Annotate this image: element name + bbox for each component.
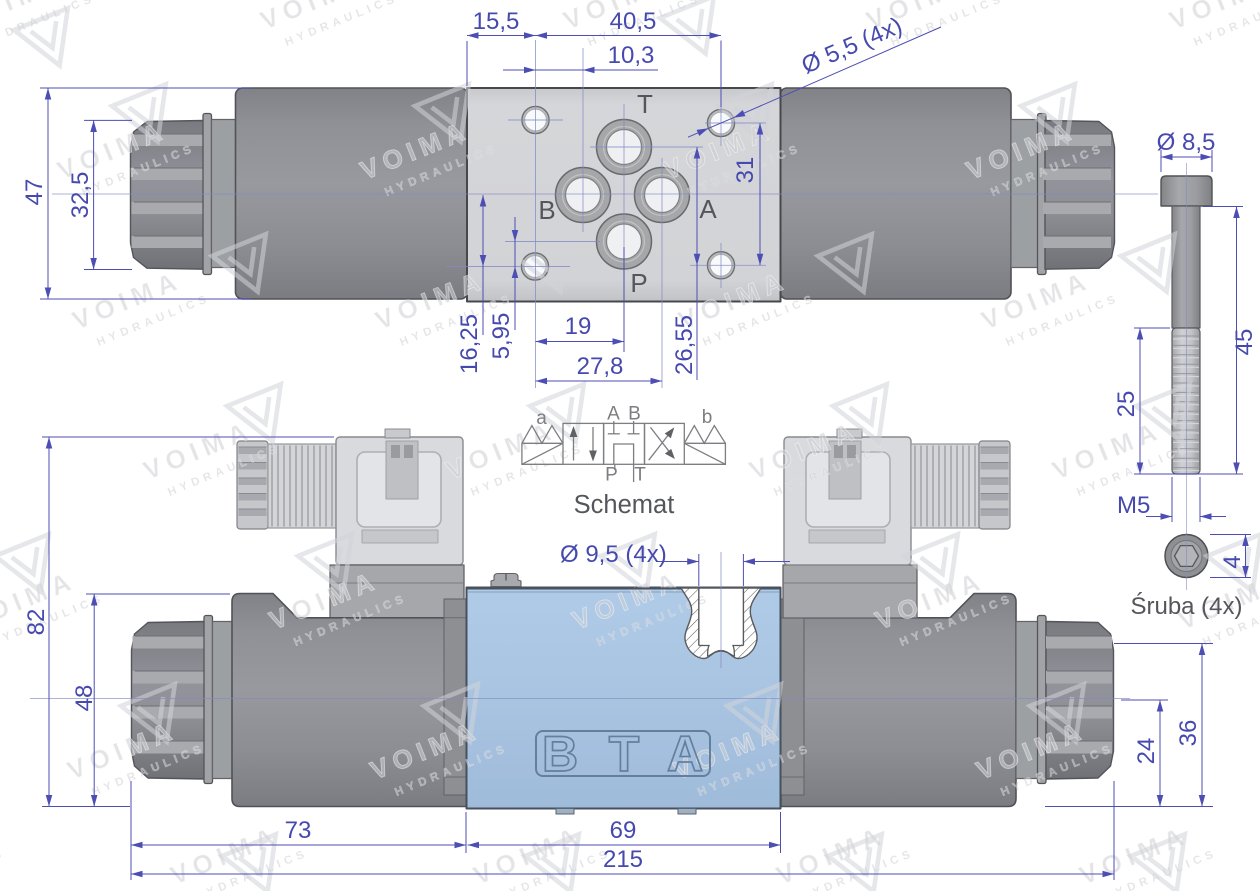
svg-text:25: 25 <box>1113 391 1140 418</box>
svg-text:27,8: 27,8 <box>577 353 624 380</box>
svg-text:19: 19 <box>565 313 592 340</box>
svg-text:P: P <box>605 465 618 486</box>
svg-text:A: A <box>699 194 717 224</box>
svg-text:45: 45 <box>1231 329 1258 356</box>
svg-text:A: A <box>607 404 620 425</box>
svg-text:16,25: 16,25 <box>456 314 483 374</box>
svg-text:B: B <box>538 195 555 225</box>
svg-text:T: T <box>609 726 640 782</box>
svg-text:47: 47 <box>21 179 48 206</box>
svg-text:a: a <box>536 408 547 429</box>
svg-text:26,55: 26,55 <box>671 315 698 375</box>
svg-text:A: A <box>667 726 703 782</box>
svg-text:69: 69 <box>610 817 637 844</box>
svg-text:31: 31 <box>732 157 759 184</box>
svg-text:215: 215 <box>603 846 643 873</box>
svg-text:T: T <box>637 89 653 119</box>
svg-text:73: 73 <box>285 817 312 844</box>
svg-text:b: b <box>702 407 713 428</box>
svg-text:15,5: 15,5 <box>473 8 520 35</box>
svg-text:48: 48 <box>71 685 98 712</box>
svg-text:Schemat: Schemat <box>574 491 675 519</box>
svg-text:10,3: 10,3 <box>608 42 655 69</box>
svg-text:82: 82 <box>23 609 50 636</box>
svg-text:Ø 8,5: Ø 8,5 <box>1157 129 1216 156</box>
svg-text:32,5: 32,5 <box>67 172 94 219</box>
svg-text:5,95: 5,95 <box>488 313 515 360</box>
svg-text:24: 24 <box>1133 738 1160 765</box>
svg-text:P: P <box>630 268 647 298</box>
svg-text:B: B <box>628 404 641 425</box>
svg-text:36: 36 <box>1175 720 1202 747</box>
svg-text:T: T <box>634 465 646 486</box>
svg-text:B: B <box>542 726 578 782</box>
svg-text:M5: M5 <box>1117 492 1150 519</box>
svg-text:Ø 9,5 (4x): Ø 9,5 (4x) <box>560 541 667 568</box>
svg-text:4: 4 <box>1219 555 1246 568</box>
svg-text:40,5: 40,5 <box>610 8 657 35</box>
svg-text:Śruba (4x): Śruba (4x) <box>1130 592 1242 620</box>
